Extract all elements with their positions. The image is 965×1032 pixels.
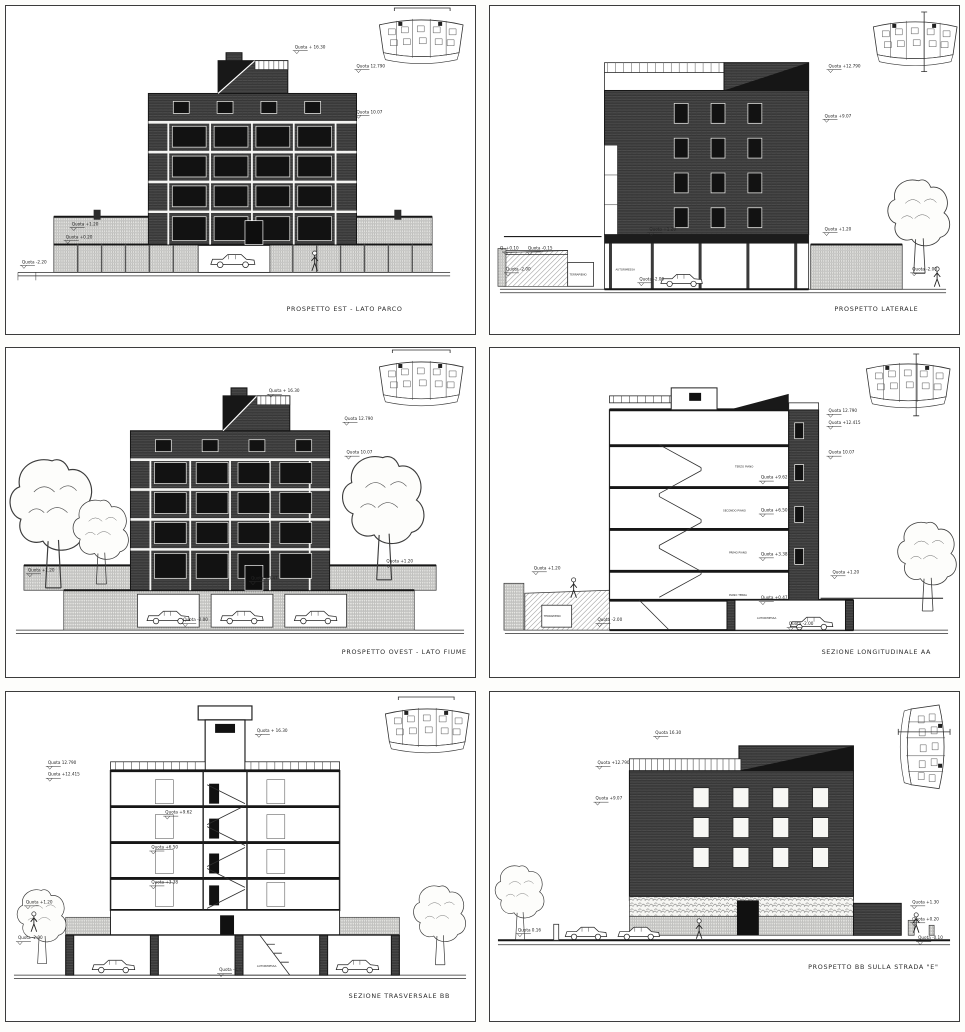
floor-label: PRIMO PIANO	[729, 550, 747, 554]
drawing-sezione-trasversale: Quota + 16.30 Quota 12.790 Quota +12.415…	[6, 692, 475, 1021]
quota-label: Quota 0.16	[518, 927, 542, 932]
quota-label: Quota +12.790	[829, 64, 861, 69]
quota-label: Quota +0.20	[912, 916, 939, 921]
panel-caption: PROSPETTO BB SULLA STRADA "E"	[808, 963, 938, 971]
drawing-prospetto-ovest: Quota + 16.30 Quota 12.790 Quota 10.07 Q…	[6, 348, 475, 677]
room-label-autorimessa: AUTORIMESSA	[615, 267, 635, 271]
quota-label: Quota +1.30	[912, 899, 939, 904]
quota-label: Quota +3.38	[761, 551, 788, 556]
panel-prospetto-ovest: Quota + 16.30 Quota 12.790 Quota 10.07 Q…	[5, 347, 476, 678]
basement-garage	[64, 590, 415, 630]
floor-label: PIANO TERRA	[729, 593, 747, 597]
portico-garage	[605, 235, 809, 290]
tree-icon	[414, 886, 466, 965]
panel-sezione-longitudinale: Quota 12.790 Quota +12.415 Quota 10.07 T…	[489, 347, 960, 678]
quota-label: Quota +0.20	[66, 235, 93, 240]
room-label-terrapieno: TERRAPIENO	[543, 614, 561, 618]
ground-line	[14, 975, 466, 978]
key-plan-bracket	[392, 350, 450, 353]
drawing-prospetto-laterale: Quota +12.790 Quota +9.07 Quota +1.20 Qu…	[490, 6, 959, 334]
quota-label: Quota + 16.30	[257, 728, 288, 733]
floor-label: TERZO PIANO	[734, 465, 753, 469]
quota-label: Quota +1.20	[833, 569, 860, 574]
street-post	[554, 924, 559, 940]
quota-label: Quota +1.20	[386, 558, 413, 563]
quota-label: Quota 16.30	[655, 730, 681, 735]
quota-label: Quota +9.62	[761, 475, 788, 480]
drawing-prospetto-bb-strada: Quota 16.30 Quota +12.790 Quota +9.07 Qu…	[490, 692, 959, 1021]
ground-line	[498, 940, 950, 944]
quota-label: Quota -2.44	[219, 967, 244, 972]
quota-label: Quota -2.00	[506, 266, 531, 271]
floor-label: SECONDO PIANO	[723, 509, 746, 513]
section-building	[609, 388, 853, 600]
quota-label: Quota +12.790	[598, 760, 630, 765]
quota-label: Quota -2.00	[598, 617, 623, 622]
key-plan	[385, 708, 469, 753]
panel-sezione-trasversale: Quota + 16.30 Quota 12.790 Quota +12.415…	[5, 691, 476, 1022]
quota-label: Quota +1.20	[26, 899, 53, 904]
terrain-bank	[504, 583, 610, 630]
quota-label: Quota -2.00	[183, 617, 208, 622]
key-plan	[873, 21, 957, 66]
quota-label: Quota + 16.30	[295, 45, 326, 50]
building-elevation	[605, 63, 809, 235]
quota-label: Quota -2.20	[22, 259, 47, 264]
room-label-autorimessa: AUTORIMESSA	[757, 616, 777, 620]
key-plan-bracket	[394, 8, 450, 11]
panel-caption: PROSPETTO OVEST - LATO FIUME	[342, 648, 467, 656]
drawing-prospetto-est: Quota + 16.30 Quota 12.790 Quota 10.07 Q…	[6, 6, 475, 334]
quota-label: Quota 10.07	[347, 450, 373, 455]
key-plan-bracket	[398, 697, 454, 700]
podium	[66, 910, 400, 935]
boundary-fence	[811, 245, 903, 290]
quota-label: Quota +9.07	[825, 113, 852, 118]
drawing-sezione-longitudinale: Quota 12.790 Quota +12.415 Quota 10.07 T…	[490, 348, 959, 677]
key-plan	[379, 361, 463, 406]
quota-label: Quota +3.38	[151, 879, 178, 884]
panel-caption: PROSPETTO EST - LATO PARCO	[287, 306, 403, 313]
quota-label: Quota +1.20	[825, 227, 852, 232]
drawing-sheet: Quota + 16.30 Quota 12.790 Quota 10.07 Q…	[0, 0, 965, 1032]
ground-line	[18, 272, 450, 280]
stair-tower	[198, 706, 252, 771]
building-elevation	[629, 746, 853, 901]
panel-caption: PROSPETTO LATERALE	[834, 306, 918, 313]
key-plan	[379, 19, 463, 64]
panel-caption: SEZIONE LONGITUDINALE AA	[822, 648, 932, 656]
car-icon	[565, 927, 606, 939]
panel-caption: SEZIONE TRASVERSALE BB	[349, 992, 450, 1000]
panel-prospetto-bb-strada: Quota 16.30 Quota +12.790 Quota +9.07 Qu…	[489, 691, 960, 1022]
quota-label: Quota +0.47	[251, 575, 278, 580]
ground-line	[16, 630, 464, 633]
key-plan	[866, 363, 950, 408]
quota-label: Quota +6.50	[151, 845, 178, 850]
section-building	[111, 771, 340, 911]
basement-garage	[609, 600, 853, 630]
building-elevation	[148, 93, 356, 244]
quota-label: Quota +1.20	[649, 227, 676, 232]
quota-label: Quota -2.00	[639, 276, 664, 281]
quota-label: Quota +9.62	[165, 810, 192, 815]
quota-label: Quota -2.00	[789, 621, 814, 626]
quota-label: Quota +6.50	[761, 508, 788, 513]
room-label-autorimessa: AUTORIMESSA	[257, 964, 277, 968]
quota-label: Quota 12.790	[829, 408, 858, 413]
quota-label: Quota +1.20	[72, 222, 99, 227]
quota-label: Quota -2.00	[18, 935, 43, 940]
quota-label: Quota 10.07	[829, 450, 855, 455]
panel-prospetto-est: Quota + 16.30 Quota 12.790 Quota 10.07 Q…	[5, 5, 476, 335]
building-elevation	[130, 431, 329, 591]
panel-prospetto-laterale: Quota +12.790 Quota +9.07 Quota +1.20 Qu…	[489, 5, 960, 335]
quota-label: Quota +9.07	[596, 796, 623, 801]
quota-label: Quota -2.00	[912, 266, 937, 271]
quota-label: Q. +0.10	[500, 246, 519, 251]
hedge-planter	[629, 896, 934, 935]
quota-label: Quota + 16.30	[269, 388, 300, 393]
quota-label: Quota +0.47	[761, 595, 788, 600]
room-label-terrapieno: TERRAPIENO	[569, 272, 587, 276]
quota-label: Quota -0.15	[528, 246, 553, 251]
penthouse	[218, 53, 288, 94]
quota-label: Quota 10.07	[357, 109, 383, 114]
quota-label: Quota 12.790	[357, 64, 386, 69]
quota-label: Quota 12.790	[345, 416, 374, 421]
quota-label: Quota +12.415	[48, 772, 80, 777]
key-plan	[900, 705, 945, 789]
quota-label: Quota -0.10	[918, 935, 943, 940]
quota-label: Quota +1.20	[28, 567, 55, 572]
quota-label: Quota 12.790	[48, 760, 77, 765]
quota-label: Quota +1.20	[534, 565, 561, 570]
quota-label: Quota +12.415	[829, 420, 861, 425]
